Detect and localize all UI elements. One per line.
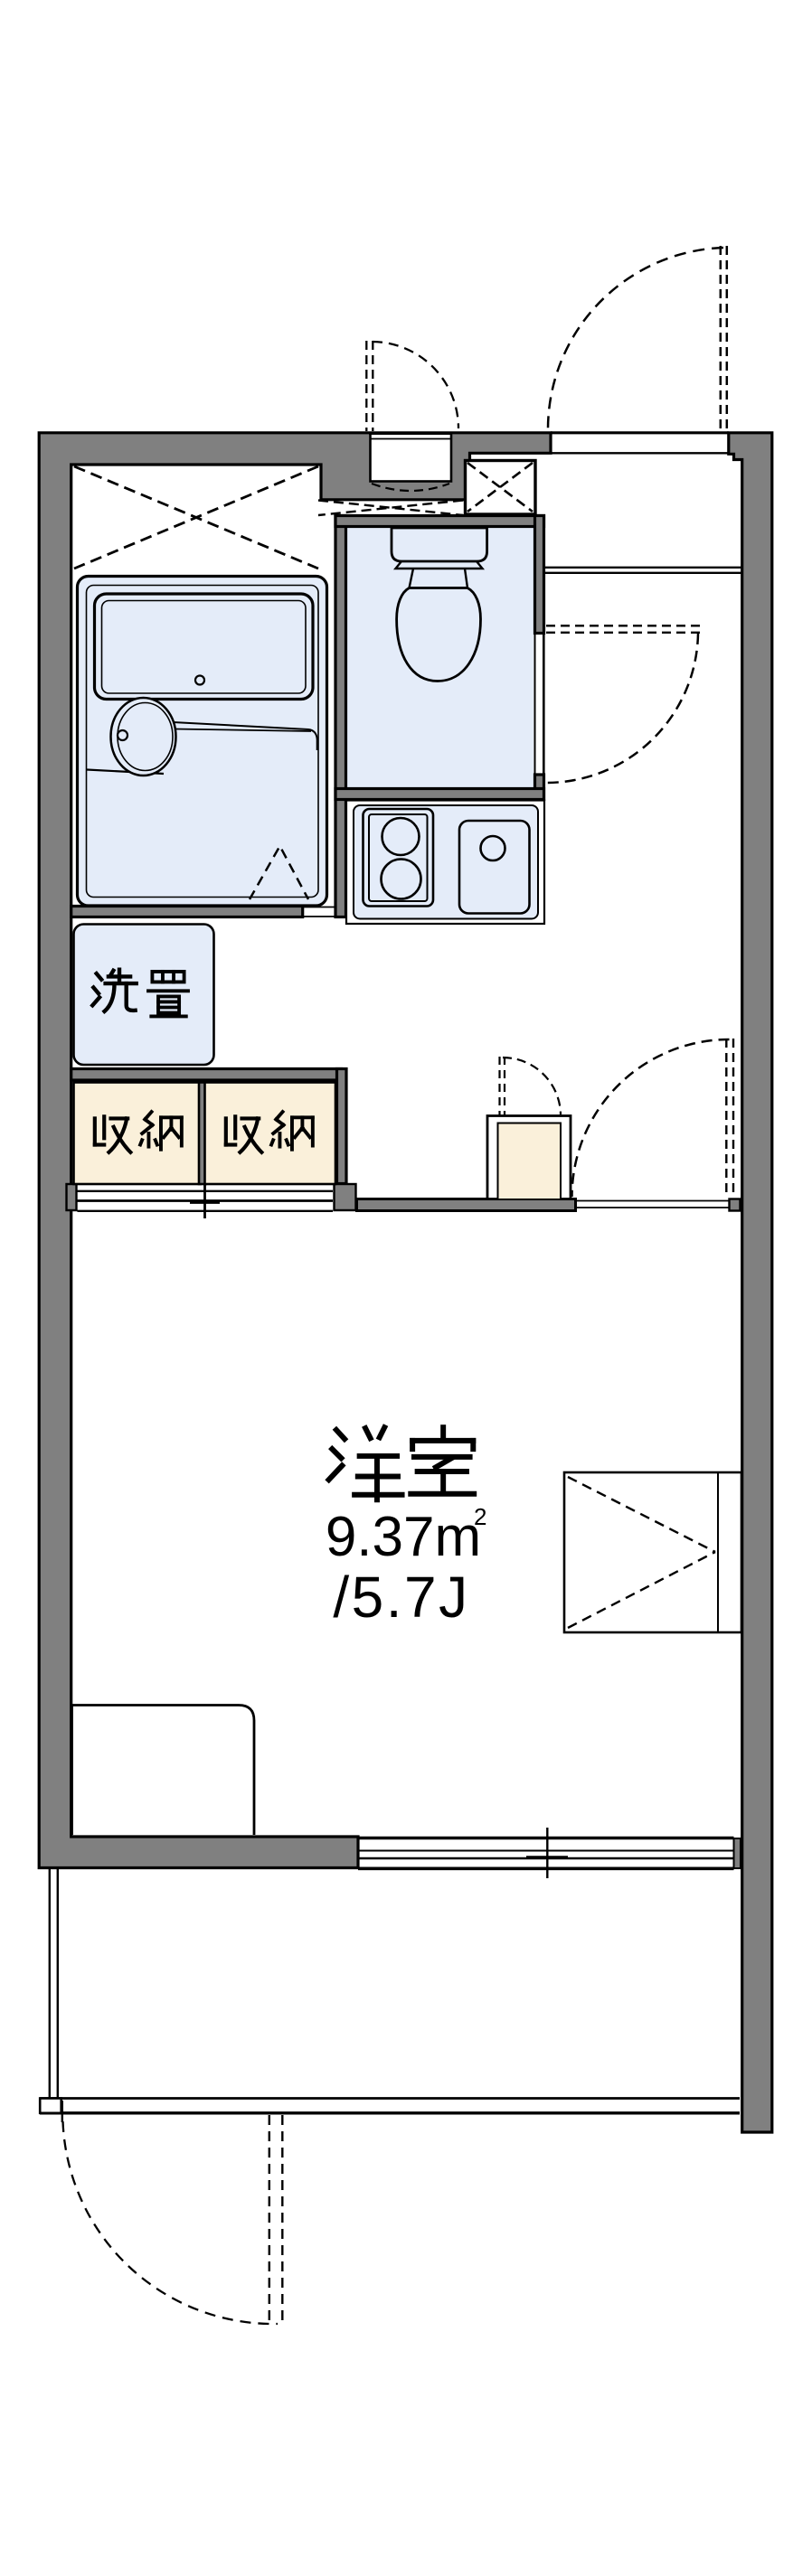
svg-text:/5.7J: /5.7J <box>333 1565 469 1630</box>
svg-text:2: 2 <box>474 1503 486 1530</box>
svg-text:9.37m: 9.37m <box>326 1506 481 1568</box>
